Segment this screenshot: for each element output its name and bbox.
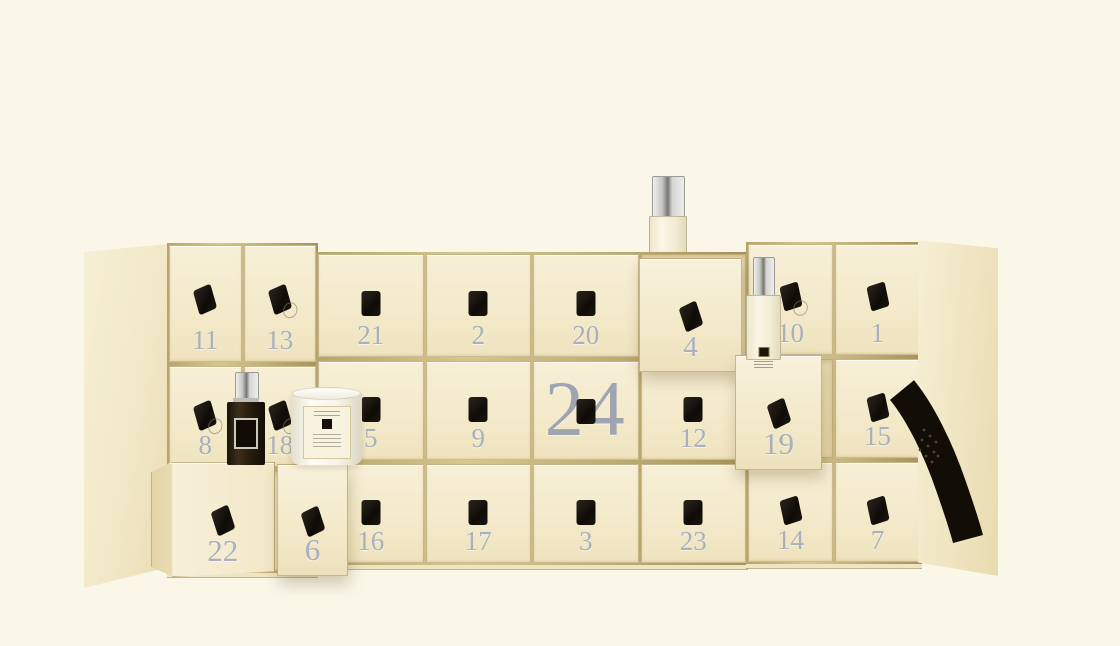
drawer-knob (779, 282, 802, 312)
drawer-number: 13 (245, 325, 316, 356)
drawer-21: 21 (318, 254, 424, 357)
drawer-number: 23 (642, 526, 746, 557)
drawer-20: 20 (533, 254, 639, 357)
drawer-number: 21 (319, 320, 423, 351)
bottle-body (227, 402, 265, 465)
drawer-1: 1 (835, 244, 920, 355)
drawer-number: 4 (640, 331, 741, 364)
drawer-knob (866, 282, 889, 312)
drawer-12: 12 (641, 361, 747, 460)
bottle-cap (235, 372, 259, 401)
bottle-label (234, 418, 258, 449)
travel-candle (291, 391, 362, 465)
drawer-14: 14 (748, 462, 833, 562)
bottle-label-text-lines (754, 361, 773, 370)
drawer-number: 1 (836, 318, 919, 349)
drawer-number: 19 (736, 426, 821, 462)
candle-label (303, 406, 351, 459)
bottle-cap (753, 257, 775, 298)
drawer-knob (268, 284, 292, 316)
drawer-11: 11 (169, 245, 242, 362)
drawer-knob (268, 399, 292, 431)
drawer-knob (469, 291, 488, 316)
drawer-knob (576, 291, 595, 316)
drawer-19: 19 (735, 355, 822, 470)
drawer-number: 17 (427, 526, 531, 557)
drawer-number: 2 (427, 320, 531, 351)
bottle-label (758, 347, 769, 357)
drawer-13: 13 (244, 245, 317, 362)
advent-calendar-box: 1113818 212205924121617323 10115147 (0, 0, 1120, 646)
bottle-body (746, 295, 781, 360)
black-ribbon (878, 378, 1008, 554)
drawer-2: 2 (426, 254, 532, 357)
drawer-knob (361, 397, 380, 422)
drawer-number: 22 (172, 533, 274, 569)
drawer-number: 9 (427, 423, 531, 454)
cologne-bottle-on-box-top (649, 176, 687, 260)
cologne-bottle-front (746, 257, 780, 358)
drawer-3: 3 (533, 464, 639, 563)
drawer-knob (576, 399, 595, 424)
drawer-17: 17 (426, 464, 532, 563)
drawer-knob (210, 505, 235, 537)
drawer-number: 14 (749, 525, 832, 556)
drawer-number: 12 (642, 423, 746, 454)
drawer-9: 9 (426, 361, 532, 460)
drawer-number: 20 (534, 320, 638, 351)
bottle-cap (652, 176, 685, 218)
drawer-knob (193, 399, 217, 431)
drawer-knob (576, 500, 595, 525)
drawer-knob (779, 496, 802, 526)
candle-logo-icon (322, 419, 332, 429)
drawer-knob (684, 397, 703, 422)
drawer-24: 24 (533, 361, 639, 460)
drawer-number: 3 (534, 526, 638, 557)
drawer-knob (469, 500, 488, 525)
drawer-knob (469, 397, 488, 422)
drawer-knob (766, 398, 791, 430)
drawer-22: 22 (151, 462, 275, 577)
drawer-knob (684, 500, 703, 525)
drawer-4: 4 (639, 258, 742, 372)
drawer-knob (678, 300, 703, 332)
drawer-6: 6 (277, 464, 348, 576)
advent-calendar-scene: 1113818 212205924121617323 10115147 (0, 0, 1120, 646)
drawer-23: 23 (641, 464, 747, 563)
drawer-number: 11 (170, 325, 241, 356)
drawer-knob (361, 500, 380, 525)
drawer-number: 6 (278, 532, 347, 568)
drawer-knob (193, 284, 217, 316)
drawer-knob (361, 291, 380, 316)
dark-cologne-bottle (227, 372, 265, 465)
